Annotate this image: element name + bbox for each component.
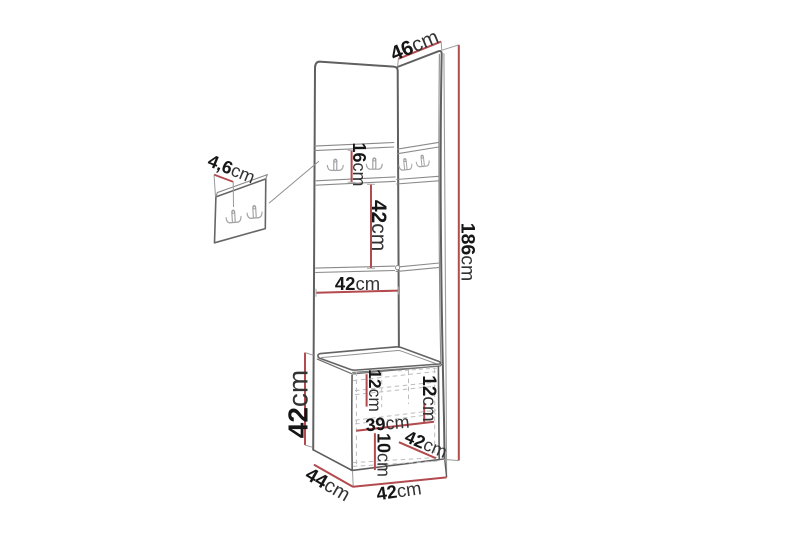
svg-text:42cm: 42cm [282,370,313,438]
svg-text:12cm: 12cm [365,369,385,412]
svg-text:16cm: 16cm [349,142,369,186]
svg-text:39cm: 39cm [365,412,411,436]
svg-text:12cm: 12cm [418,375,439,421]
svg-text:42cm: 42cm [335,273,380,294]
svg-text:10cm: 10cm [374,433,394,477]
svg-text:186cm: 186cm [456,223,478,282]
svg-text:42cm: 42cm [367,200,390,251]
